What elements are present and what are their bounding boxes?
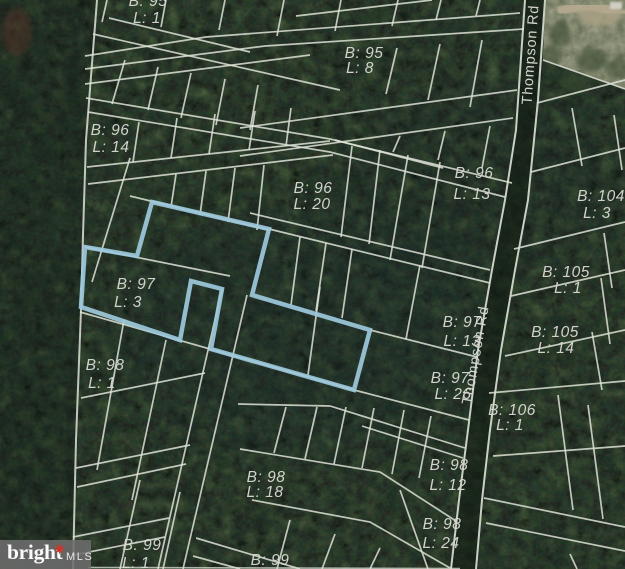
svg-text:B: 95: B: 95 xyxy=(129,0,168,10)
svg-text:L: 20: L: 20 xyxy=(294,196,331,213)
svg-text:B: 99: B: 99 xyxy=(123,537,162,554)
svg-text:L: 1: L: 1 xyxy=(133,10,161,27)
svg-text:B: 96: B: 96 xyxy=(294,180,333,197)
svg-text:B: 98: B: 98 xyxy=(430,457,469,474)
svg-text:L: 14: L: 14 xyxy=(93,139,130,156)
svg-text:B: 98: B: 98 xyxy=(423,516,462,533)
svg-text:bright: bright xyxy=(7,540,64,564)
svg-text:B: 98: B: 98 xyxy=(86,357,125,374)
svg-text:L: 3: L: 3 xyxy=(114,294,142,311)
svg-text:B: 105: B: 105 xyxy=(531,324,579,341)
svg-text:B: 96: B: 96 xyxy=(91,122,130,139)
svg-text:B: 104: B: 104 xyxy=(577,188,625,205)
svg-text:L: 1: L: 1 xyxy=(554,280,582,297)
svg-text:L: 1: L: 1 xyxy=(496,417,524,434)
svg-text:B: 96: B: 96 xyxy=(455,165,494,182)
svg-text:B: 105: B: 105 xyxy=(542,264,590,281)
svg-text:L: 18: L: 18 xyxy=(247,484,284,501)
svg-text:L: 13: L: 13 xyxy=(454,186,491,203)
svg-text:L: 3: L: 3 xyxy=(583,205,611,222)
svg-text:L: 24: L: 24 xyxy=(423,535,460,552)
svg-text:L: 8: L: 8 xyxy=(346,60,374,77)
svg-text:B: 99: B: 99 xyxy=(251,552,290,569)
svg-text:MLS: MLS xyxy=(66,551,93,563)
svg-text:L: 12: L: 12 xyxy=(430,477,467,494)
svg-text:L: 14: L: 14 xyxy=(538,340,575,357)
svg-text:B: 97: B: 97 xyxy=(117,276,157,293)
svg-text:L: 1: L: 1 xyxy=(88,375,116,392)
